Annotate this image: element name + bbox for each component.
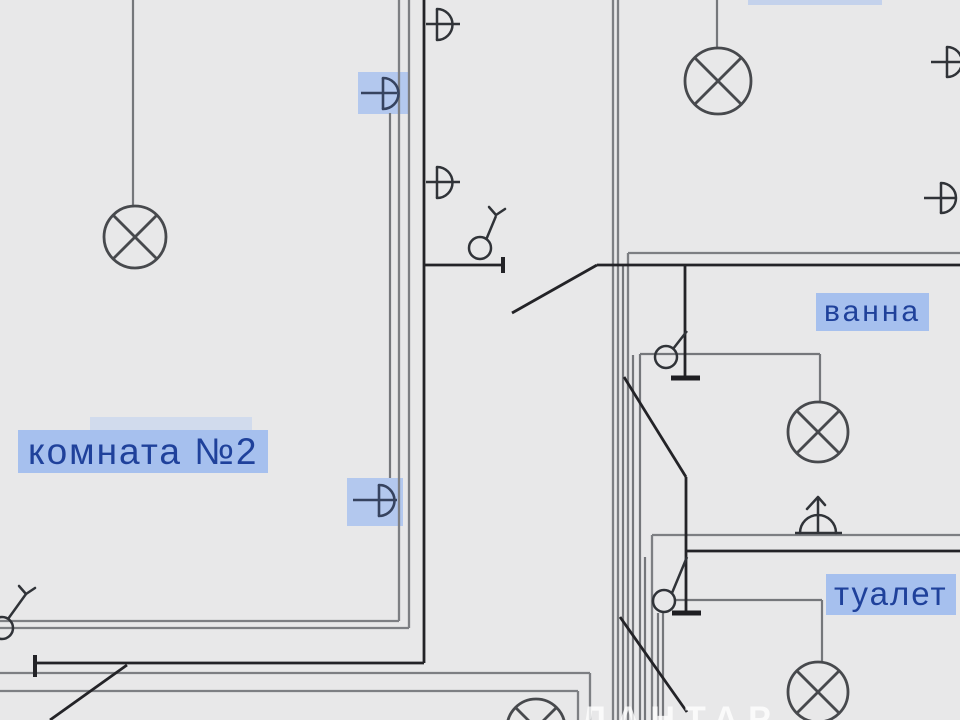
switch-left-hook: [19, 586, 35, 594]
label-bath: ванна: [816, 293, 929, 331]
switch-hall-link: [486, 216, 496, 240]
switch-hall-circle: [469, 237, 491, 259]
door-leaf-hall: [512, 265, 597, 313]
switch-hall-hook: [489, 207, 505, 215]
fan-tip: [807, 497, 825, 509]
label-toilet: туалет: [826, 574, 956, 615]
diagram-canvas: [0, 0, 960, 720]
top-edge-label-highlight: [748, 0, 882, 5]
switch-bath-circle: [655, 346, 677, 368]
floor-plan: комната №2 ванна туалет ЛАНТАР: [0, 0, 960, 720]
switch-left-link: [8, 594, 26, 619]
door-leaf-hall-south: [620, 617, 687, 712]
switch-toilet-circle: [653, 590, 675, 612]
label-room2: комната №2: [18, 430, 268, 473]
watermark: ЛАНТАР: [582, 700, 781, 720]
